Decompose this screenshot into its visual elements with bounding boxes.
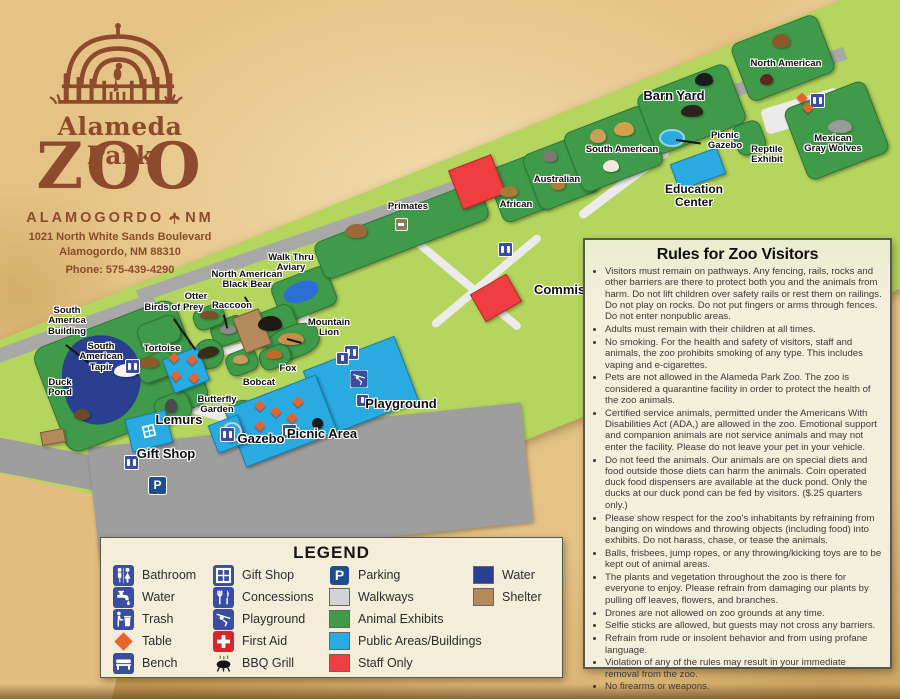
legend-column-1: Bathroom Water Trash Table Bench <box>113 564 196 674</box>
monkey-icon <box>345 224 367 238</box>
legend-item: Staff Only <box>329 652 482 674</box>
rule-item: Selfie sticks are allowed, but guests ma… <box>605 620 882 631</box>
legend-item: Shelter <box>473 586 542 608</box>
label-tortoise: Tortoise <box>138 344 186 354</box>
rule-item: The plants and vegetation throughout the… <box>605 572 882 606</box>
water-fountain-icon <box>113 587 134 608</box>
trash-icon <box>113 609 134 630</box>
bathroom-icon <box>113 565 134 586</box>
legend-panel: LEGEND Bathroom Water Trash Table Bench <box>100 537 563 678</box>
legend-column-2: Gift Shop Concessions Playground First A… <box>213 564 314 674</box>
public-areas-swatch <box>329 632 350 650</box>
zoo-map-poster: P South America Building South American … <box>0 0 900 699</box>
parking-icon: P <box>148 476 167 495</box>
musk-ox-icon <box>681 105 703 117</box>
turkey-icon <box>760 74 773 85</box>
rule-item: Violation of any of the rules may result… <box>605 657 882 680</box>
bench-icon <box>113 653 134 674</box>
logo-zoo-word: ZOO <box>25 140 215 194</box>
legend-item: Gift Shop <box>213 564 314 586</box>
logo-city-state: ALAMOGORDO NM <box>25 210 215 226</box>
legend-column-4: Water Shelter <box>473 564 542 608</box>
rules-title: Rules for Zoo Visitors <box>585 246 890 264</box>
playground-icon <box>350 370 368 388</box>
label-picnic-area: Picnic Area <box>282 427 362 441</box>
page-bottom-shadow <box>0 684 900 699</box>
rules-panel: Rules for Zoo Visitors Visitors must rem… <box>583 238 892 669</box>
deer-icon <box>772 34 790 48</box>
rule-item: Please show respect for the zoo's inhabi… <box>605 513 882 547</box>
zoo-logo-gazebo <box>48 20 188 112</box>
label-north-american: North American <box>748 59 824 69</box>
label-education-center: Education Center <box>658 183 730 209</box>
legend-item: Concessions <box>213 586 314 608</box>
llama-icon <box>590 129 606 143</box>
legend-item: First Aid <box>213 630 314 652</box>
logo-state: NM <box>185 210 214 226</box>
legend-title: LEGEND <box>101 543 562 563</box>
label-gazebo: Gazebo <box>234 432 288 446</box>
concessions-icon <box>213 587 234 608</box>
first-aid-icon <box>213 631 234 652</box>
legend-item: BBQ Grill <box>213 652 314 674</box>
trash-icon <box>336 352 349 365</box>
water-swatch <box>473 566 494 584</box>
walkways-swatch <box>329 588 350 606</box>
rule-item: Certified service animals, permitted und… <box>605 408 882 453</box>
rule-item: Visitors must remain on pathways. Any fe… <box>605 266 882 323</box>
bench-icon <box>395 218 408 231</box>
legend-item: Water <box>113 586 196 608</box>
rule-item: Pets are not allowed in the Alameda Park… <box>605 372 882 406</box>
gift-shop-icon <box>213 565 234 586</box>
shelter-swatch <box>473 588 494 606</box>
label-mountain-lion: Mountain Lion <box>300 318 358 339</box>
table-icon <box>114 632 132 650</box>
logo-city: ALAMOGORDO <box>26 210 164 226</box>
label-raccoon: Raccoon <box>206 301 258 311</box>
label-south-america-building: South America Building <box>24 306 110 337</box>
legend-item: Public Areas/Buildings <box>329 630 482 652</box>
address-line-1: 1021 North White Sands Boulevard <box>15 230 225 245</box>
label-lemurs: Lemurs <box>150 413 208 427</box>
duck-icon <box>74 409 90 420</box>
antelope-icon <box>500 186 518 197</box>
rule-item: No smoking. For the health and safety of… <box>605 337 882 371</box>
legend-item: Trash <box>113 608 196 630</box>
restroom-icon <box>498 242 513 257</box>
legend-item: Bathroom <box>113 564 196 586</box>
legend-column-3: P Parking Walkways Animal Exhibits Publi… <box>329 564 482 674</box>
label-barn-yard: Barn Yard <box>640 89 708 103</box>
bobcat-icon <box>233 355 248 364</box>
bbq-grill-icon <box>213 653 234 674</box>
rules-list: Visitors must remain on pathways. Any fe… <box>589 266 882 693</box>
rule-item: Do not feed the animals. Our animals are… <box>605 455 882 512</box>
label-birds-of-prey: Birds of Prey <box>142 303 206 313</box>
label-reptile-exhibit: Reptile Exhibit <box>740 145 794 166</box>
lemur-icon <box>165 399 177 413</box>
label-primates: Primates <box>380 202 436 212</box>
label-bobcat: Bobcat <box>236 378 282 388</box>
label-mexican-gray-wolves: Mexican Gray Wolves <box>794 134 872 155</box>
legend-item: Bench <box>113 652 196 674</box>
rule-item: Drones are not allowed on zoo grounds at… <box>605 608 882 619</box>
camel-icon <box>614 122 634 136</box>
label-fox: Fox <box>274 364 302 374</box>
label-south-american-tapir: South American Tapir <box>66 342 136 373</box>
label-african: African <box>494 200 538 210</box>
legend-item: Playground <box>213 608 314 630</box>
playground-icon <box>213 609 234 630</box>
restroom-icon <box>220 427 235 442</box>
rule-item: Refrain from rude or insolent behavior a… <box>605 633 882 656</box>
logo-address: 1021 North White Sands Boulevard Alamogo… <box>15 230 225 278</box>
phone-line: Phone: 575-439-4290 <box>15 263 225 278</box>
emu-icon <box>543 150 557 162</box>
label-walk-thru-aviary: Walk Thru Aviary <box>262 253 320 274</box>
wolf-icon <box>828 120 852 133</box>
parking-icon: P <box>330 566 349 585</box>
address-line-2: Alamogordo, NM 88310 <box>15 245 225 260</box>
label-duck-pond: Duck Pond <box>38 378 82 399</box>
legend-item: Table <box>113 630 196 652</box>
legend-item: Animal Exhibits <box>329 608 482 630</box>
fox-icon <box>266 350 282 359</box>
legend-item: P Parking <box>329 564 482 586</box>
animal-exhibits-swatch <box>329 610 350 628</box>
rule-item: Adults must remain with their children a… <box>605 324 882 335</box>
label-playground: Playground <box>360 397 442 411</box>
rule-item: Balls, frisbees, jump ropes, or any thro… <box>605 548 882 571</box>
cow-icon <box>695 73 713 86</box>
alpaca-icon <box>603 160 619 172</box>
legend-item: Walkways <box>329 586 482 608</box>
label-south-american: South American <box>580 145 664 155</box>
leaf-icon <box>168 212 181 225</box>
label-gift-shop: Gift Shop <box>130 447 202 461</box>
legend-item: Water <box>473 564 542 586</box>
tortoise-icon <box>139 357 159 368</box>
staff-only-swatch <box>329 654 350 672</box>
black-bear-icon <box>258 316 282 331</box>
label-australian: Australian <box>528 175 586 185</box>
